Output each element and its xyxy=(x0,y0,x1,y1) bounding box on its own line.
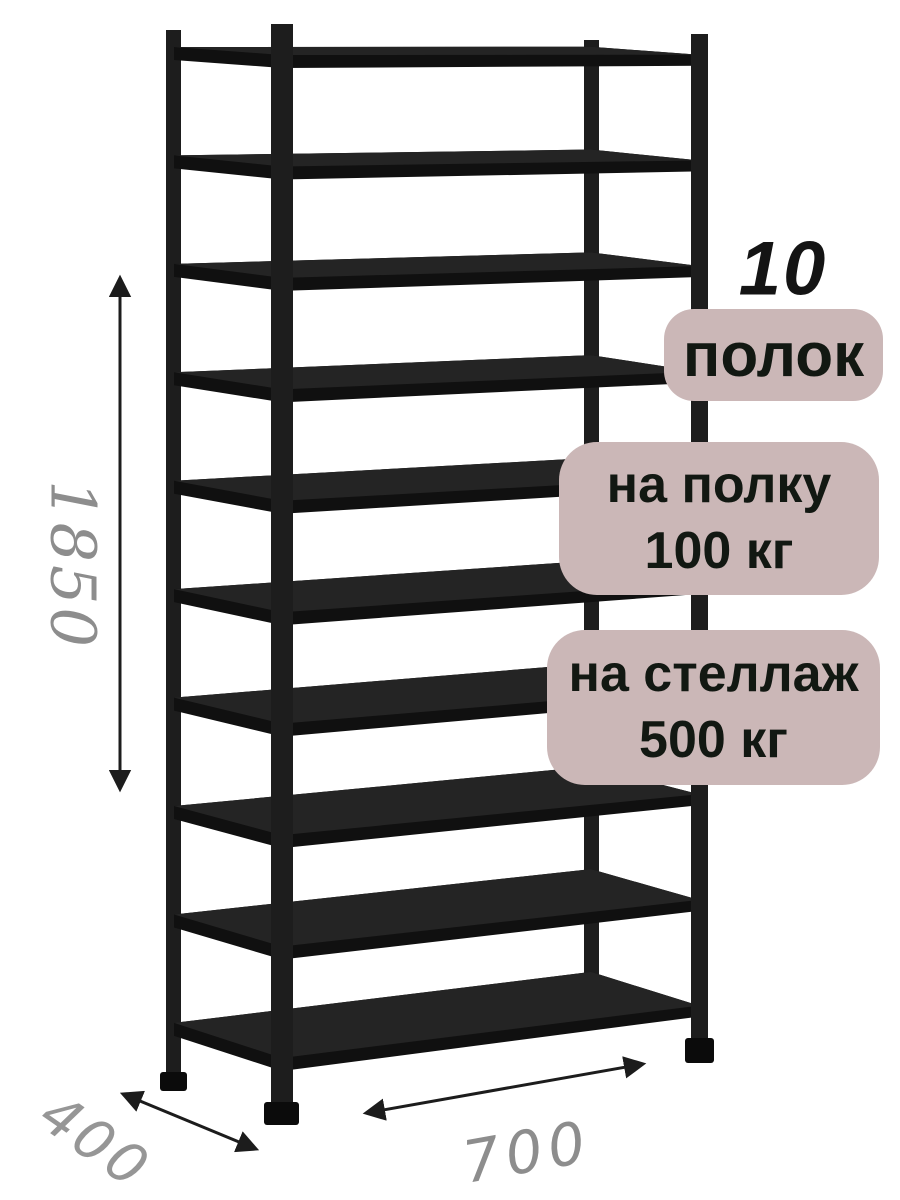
per-rack-load-line2: 500 кг xyxy=(639,708,788,774)
per-shelf-load-badge: на полку 100 кг xyxy=(559,442,879,595)
shelf-count-number: 10 xyxy=(739,226,828,313)
width-dimension-arrow xyxy=(366,1064,643,1113)
height-dimension-label: 1850 xyxy=(37,480,110,650)
product-image: 1850 400 700 10 полок на полку 100 кг на… xyxy=(0,0,900,1200)
shelf-count-word: полок xyxy=(683,320,864,391)
per-shelf-load-line1: на полку xyxy=(607,453,832,519)
rack-foot-front-right xyxy=(685,1038,714,1063)
rack-illustration xyxy=(0,0,900,1200)
rack-foot-back-left xyxy=(160,1072,187,1091)
per-shelf-load-line2: 100 кг xyxy=(645,519,794,585)
shelf-count-badge: полок xyxy=(664,309,883,401)
rack-post-front-left xyxy=(271,24,293,1108)
rack-foot-front-left xyxy=(264,1102,299,1125)
per-rack-load-badge: на стеллаж 500 кг xyxy=(547,630,880,785)
per-rack-load-line1: на стеллаж xyxy=(569,642,859,708)
